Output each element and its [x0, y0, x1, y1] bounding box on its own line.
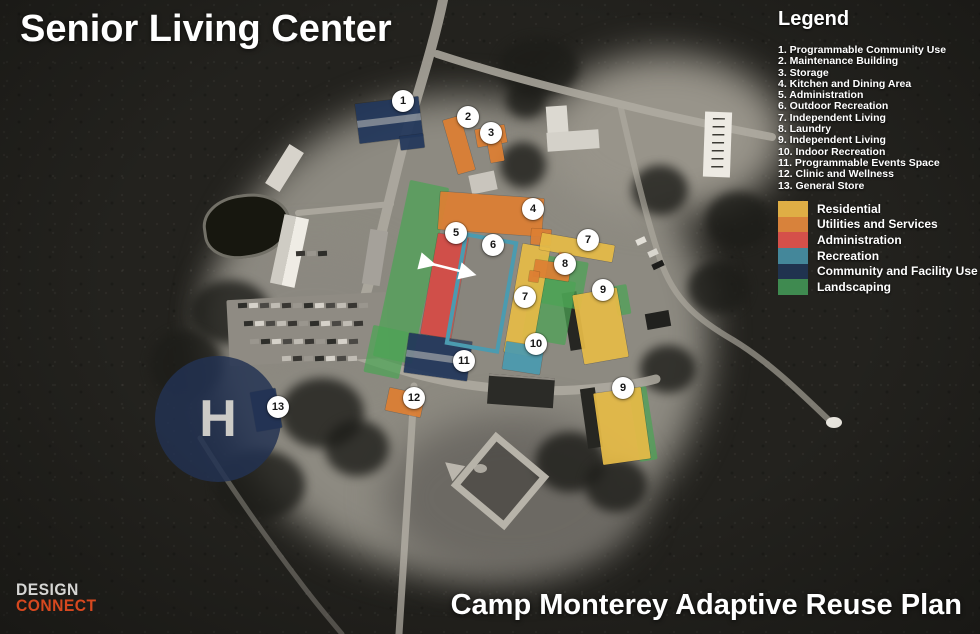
site-plan: H 1234567879101112913 Senior Living Cent…: [0, 0, 980, 634]
legend-category-row: Community and Facility Use: [778, 264, 978, 280]
color-swatch: [778, 248, 808, 264]
legend-item: 9. Independent Living: [778, 135, 978, 146]
color-swatch: [778, 279, 808, 295]
design-connect-logo: DESIGN CONNECT: [16, 582, 97, 614]
legend-category-label: Residential: [817, 202, 881, 216]
logo-line-2: CONNECT: [16, 598, 97, 614]
legend-category-row: Administration: [778, 232, 978, 248]
plan-subtitle: Camp Monterey Adaptive Reuse Plan: [451, 589, 962, 622]
legend-item: 12. Clinic and Wellness: [778, 169, 978, 180]
legend-category-label: Community and Facility Use: [817, 264, 978, 278]
legend-item: 13. General Store: [778, 181, 978, 192]
legend-category-row: Residential: [778, 201, 978, 217]
legend-category-row: Recreation: [778, 248, 978, 264]
legend-category-label: Utilities and Services: [817, 217, 938, 231]
color-swatch: [778, 232, 808, 248]
page-title: Senior Living Center: [20, 8, 392, 51]
legend-items: 1. Programmable Community Use2. Maintena…: [778, 45, 978, 192]
color-swatch: [778, 264, 808, 280]
legend-category-label: Landscaping: [817, 280, 891, 294]
color-swatch: [778, 217, 808, 233]
legend-item: 2. Maintenance Building: [778, 56, 978, 67]
legend-category-label: Recreation: [817, 249, 879, 263]
legend-categories: ResidentialUtilities and ServicesAdminis…: [778, 201, 978, 295]
legend-title: Legend: [778, 8, 978, 31]
legend-category-row: Landscaping: [778, 279, 978, 295]
legend-panel: Legend 1. Programmable Community Use2. M…: [778, 8, 978, 295]
legend-category-row: Utilities and Services: [778, 217, 978, 233]
legend-category-label: Administration: [817, 233, 902, 247]
color-swatch: [778, 201, 808, 217]
